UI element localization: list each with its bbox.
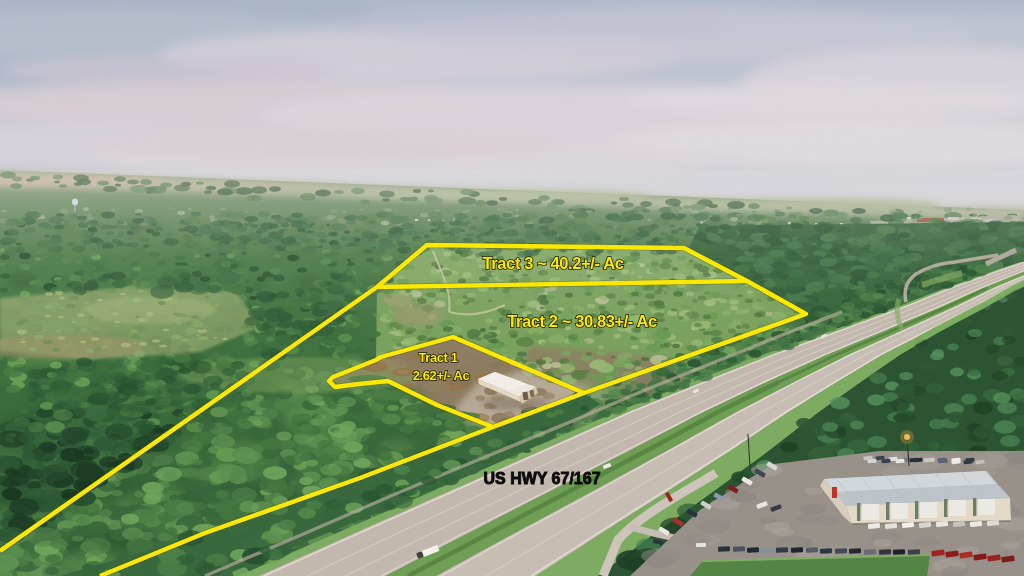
svg-text:Tract 3 ~ 40.2+/- Ac: Tract 3 ~ 40.2+/- Ac xyxy=(483,254,624,272)
svg-text:Tract 2 ~ 30.83+/- Ac: Tract 2 ~ 30.83+/- Ac xyxy=(507,312,657,330)
svg-text:US HWY 67/167: US HWY 67/167 xyxy=(483,470,600,487)
svg-text:Tract 1: Tract 1 xyxy=(418,350,457,365)
svg-text:2.62+/- Ac: 2.62+/- Ac xyxy=(413,368,470,383)
